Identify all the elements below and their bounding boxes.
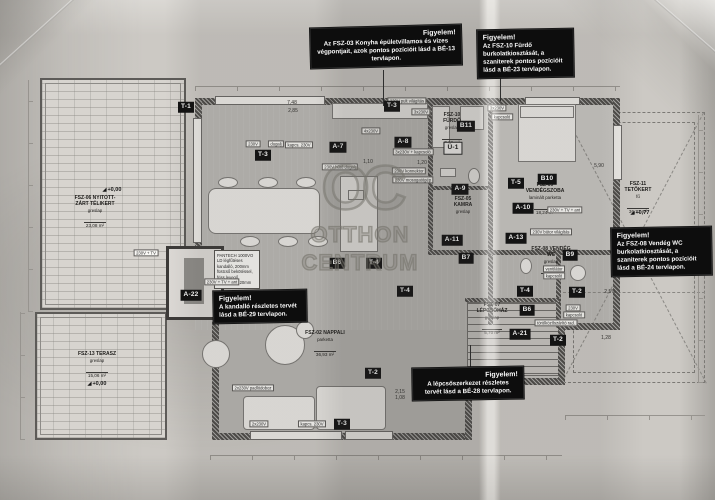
room-name: FSZ-07 LÉPCSŐHÁZ bbox=[471, 303, 513, 315]
elevation-flag-icon: ◢ bbox=[88, 381, 92, 387]
note-body: A lépcsőszerkezet részletes tervét lásd … bbox=[418, 379, 518, 397]
note-body: Az FSZ-10 Fürdő burkolatkiosztását, a sz… bbox=[483, 41, 569, 75]
chair bbox=[240, 236, 260, 247]
room-finish: fű bbox=[618, 195, 658, 200]
washbasin bbox=[440, 168, 456, 177]
room-finish: greslap bbox=[69, 209, 121, 214]
wc-washbasin bbox=[570, 265, 586, 281]
window bbox=[250, 431, 342, 440]
component-tag-t-3: T-3 bbox=[334, 419, 350, 430]
electric-label: 3x230V bbox=[487, 104, 506, 111]
chair bbox=[218, 177, 238, 188]
room-area: 15,06 m² bbox=[86, 372, 108, 379]
component-tag-a-9: A-9 bbox=[451, 184, 468, 195]
note-body: A kandalló részletes tervét lásd a BÉ-29… bbox=[219, 302, 301, 320]
dimension-label: 2,5% bbox=[604, 289, 615, 295]
room-name: FSZ-13 TERASZ bbox=[77, 352, 117, 358]
note-bathroom: Figyelem! Az FSZ-10 Fürdő burkolatkioszt… bbox=[477, 28, 575, 79]
electric-label: 2x230V bbox=[249, 420, 268, 427]
scanned-floor-plan-photo: { "watermark": { "logo": "OC", "line1": … bbox=[0, 0, 715, 500]
fold-crease-top-left bbox=[0, 0, 77, 67]
room-finish: parketta bbox=[305, 338, 345, 343]
dimension-line bbox=[195, 86, 620, 91]
chair bbox=[278, 236, 298, 247]
elevation-flag-icon: ◢ bbox=[103, 187, 107, 193]
room-name: FSZ-11 TETŐKERT bbox=[618, 182, 658, 194]
component-tag-t-4: T-4 bbox=[397, 286, 413, 297]
electric-label: 230V + TV + ant bbox=[547, 206, 582, 213]
component-tag-b7: B7 bbox=[459, 253, 474, 264]
electric-label: 4x230V bbox=[361, 127, 380, 134]
dimension-label: 7,48 bbox=[287, 100, 297, 106]
room-label-fsz-06: FSZ-06 NYITOTT-ZÁRT TÉLIKERTgreslap23,08… bbox=[69, 196, 121, 232]
dimension-label: 5,90 bbox=[594, 163, 604, 169]
electric-label: 230V konnektor bbox=[392, 167, 426, 174]
kitchen-sink bbox=[348, 190, 364, 200]
window bbox=[215, 96, 325, 105]
dimension-label: 1,20 bbox=[417, 160, 427, 166]
wall-segment bbox=[428, 250, 618, 255]
room-area: 5,70 m² bbox=[482, 329, 502, 336]
room-name: FSZ-06 NYITOTT-ZÁRT TÉLIKERT bbox=[69, 196, 121, 208]
room-label-fsz-07: FSZ-07 LÉPCSŐHÁZgreslap5,70 m² bbox=[471, 303, 513, 339]
component-tag-b10: B10 bbox=[538, 174, 557, 185]
electric-label: kapcs. 230V bbox=[298, 420, 326, 427]
elevation-marker: ◢+0,00 bbox=[88, 381, 107, 387]
fold-crease-top-right bbox=[642, 0, 715, 70]
electric-label: kapcsoló bbox=[491, 113, 513, 120]
room-name: FSZ-09 VENDÉGSZOBA bbox=[518, 183, 572, 195]
room-area: 36,71 m² bbox=[627, 208, 649, 215]
note-guest-wc: Figyelem! Az FSZ-08 Vendég WC burkolatki… bbox=[611, 226, 713, 277]
window bbox=[613, 125, 622, 180]
kitchen-island bbox=[340, 176, 378, 252]
component-tag-t-3: T-3 bbox=[255, 150, 271, 161]
sofa bbox=[316, 386, 386, 430]
note-body: Az FSZ-08 Vendég WC burkolatkiosztását, … bbox=[617, 239, 707, 273]
room-label-fsz-11: FSZ-11 TETŐKERTfű36,71 m² bbox=[618, 182, 658, 218]
wall-segment bbox=[212, 308, 219, 440]
dimension-label: 1,08 bbox=[395, 395, 405, 401]
window bbox=[193, 118, 202, 243]
note-stairs: Figyelem! A lépcsőszerkezet részletes te… bbox=[412, 366, 525, 401]
elevation-value: +0,00 bbox=[107, 187, 121, 193]
dimension-line bbox=[565, 415, 705, 420]
electric-label: 230V bbox=[246, 140, 261, 147]
component-tag-b6: B6 bbox=[520, 305, 535, 316]
electric-label: 230V bútor világítás bbox=[530, 228, 572, 235]
component-tag-a-13: A-13 bbox=[506, 233, 527, 244]
component-tag-a-8: A-8 bbox=[394, 137, 411, 148]
toilet bbox=[468, 168, 480, 184]
room-finish: greslap bbox=[77, 359, 117, 364]
note-body: Az FSZ-03 Konyha épületvillamos és vizes… bbox=[316, 37, 457, 65]
component-tag-a-10: A-10 bbox=[513, 203, 534, 214]
component-tag-t-3: T-3 bbox=[384, 101, 400, 112]
elevation-marker: ◢+0,00 bbox=[103, 187, 122, 193]
component-tag-a-22: A-22 bbox=[181, 290, 202, 301]
electric-label: törölközőszárító rad. bbox=[535, 319, 578, 326]
electric-label: dugalj bbox=[268, 140, 284, 147]
chair bbox=[258, 177, 278, 188]
electric-label: 2x230V padlódoboz bbox=[232, 384, 274, 391]
dining-table bbox=[208, 188, 320, 234]
dimension-label: 1,28 bbox=[601, 335, 611, 341]
room-label-fsz-02: FSZ-02 NAPPALIparketta36,93 m² bbox=[305, 331, 345, 361]
room-label-fsz-05: FSZ-05 KAMRAgreslap bbox=[446, 197, 480, 215]
room-name: FSZ-02 NAPPALI bbox=[305, 331, 345, 337]
room-finish: greslap bbox=[471, 316, 513, 321]
component-tag-b6: B6 bbox=[330, 258, 345, 269]
room-name: FSZ-05 KAMRA bbox=[446, 197, 480, 209]
bed-pillow bbox=[520, 106, 574, 118]
wall-segment bbox=[488, 103, 493, 325]
dimension-line bbox=[210, 455, 562, 460]
room-finish: greslap bbox=[530, 260, 572, 265]
electric-label: 230V + TV + ant bbox=[204, 278, 239, 285]
room-area: 36,93 m² bbox=[314, 351, 336, 358]
component-tag-a-7: A-7 bbox=[329, 142, 346, 153]
note-leader-line bbox=[470, 345, 471, 367]
terrace-edge-line bbox=[45, 83, 181, 305]
electric-label: 3x230V + kapcsoló bbox=[393, 148, 434, 155]
room-finish: laminált parketta bbox=[518, 196, 572, 201]
room-label-fsz-13: FSZ-13 TERASZgreslap15,06 m² bbox=[77, 352, 117, 382]
room-finish: greslap bbox=[446, 210, 480, 215]
electric-label: kapcs. 230V bbox=[285, 141, 313, 148]
window bbox=[345, 431, 393, 440]
component-tag-t-2: T-2 bbox=[550, 335, 566, 346]
component-tag-t-4: T-4 bbox=[366, 258, 382, 269]
electric-label: 3x230V bbox=[411, 108, 430, 115]
wall-segment bbox=[465, 298, 560, 302]
component-tag-a-11: A-11 bbox=[442, 235, 463, 246]
note-kitchen: Figyelem! Az FSZ-03 Konyha épületvillamo… bbox=[309, 24, 462, 69]
component-tag-a-21: A-21 bbox=[510, 329, 531, 340]
elevation-value: +0,00 bbox=[92, 381, 106, 387]
dimension-line bbox=[20, 312, 25, 440]
component-tag--1: Ü-1 bbox=[443, 142, 462, 155]
dimension-line bbox=[28, 80, 33, 312]
component-tag-t-5: T-5 bbox=[508, 178, 524, 189]
electric-label: 230V mosogatógép bbox=[392, 176, 433, 183]
component-tag-t-2: T-2 bbox=[365, 368, 381, 379]
component-tag-b9: B9 bbox=[563, 250, 578, 261]
electric-label: kapcsoló bbox=[563, 311, 585, 318]
component-tag-b11: B11 bbox=[457, 121, 475, 132]
chair bbox=[296, 177, 316, 188]
electric-label: kapcsoló bbox=[543, 272, 565, 279]
note-fireplace: Figyelem! A kandalló részletes tervét lá… bbox=[213, 289, 308, 324]
component-tag-t-4: T-4 bbox=[517, 286, 533, 297]
chair bbox=[308, 236, 328, 247]
electric-label: 230V + TV bbox=[134, 249, 159, 256]
dimension-label: 1,10 bbox=[363, 159, 373, 165]
room-area: 23,08 m² bbox=[84, 222, 106, 229]
dimension-label: 2,85 bbox=[288, 108, 298, 114]
armchair bbox=[202, 340, 230, 368]
component-tag-t-1: T-1 bbox=[178, 102, 194, 113]
terrace-winter-garden bbox=[40, 78, 186, 310]
electric-label: 230V hűtő dugalj bbox=[322, 163, 358, 170]
component-tag-t-2: T-2 bbox=[569, 287, 585, 298]
